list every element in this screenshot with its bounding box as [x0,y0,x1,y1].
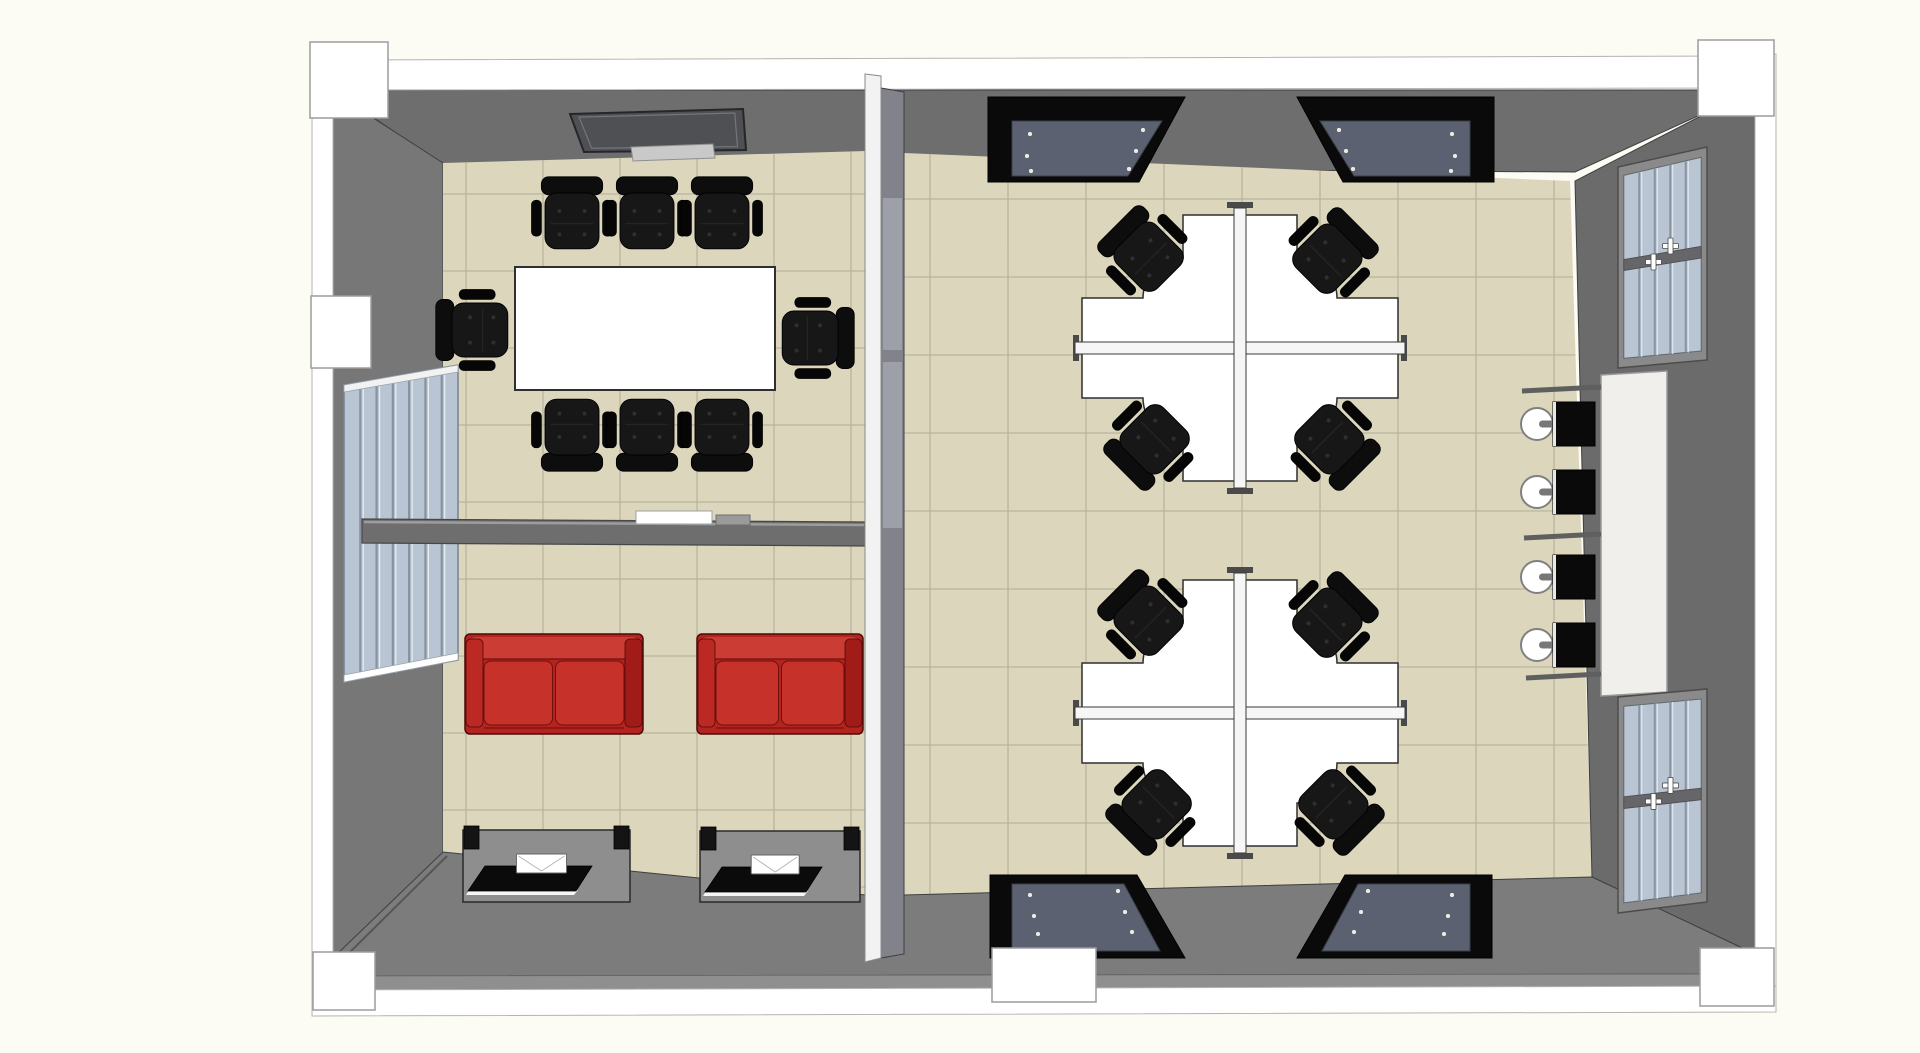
center-wall-top [865,74,881,962]
display-cabinet-top [1618,147,1707,368]
conference-table [515,267,775,390]
column-top-left [310,42,388,118]
center-wall-panel [883,362,902,528]
red-sofa-left [465,634,643,734]
display-cabinet-bottom [1618,689,1707,913]
partition-paper [636,511,712,524]
media-console-right [700,827,860,902]
column-top-right [1698,40,1774,116]
workstation-cluster-upper [1073,195,1407,500]
floor-plan-image [0,0,1920,1053]
red-sofa-right [697,634,863,734]
counter-stool [1521,623,1595,667]
partition-tray [716,515,750,525]
center-wall-panel [883,198,902,350]
standing-counter [1601,371,1667,696]
workstation-cluster-lower [1073,559,1407,865]
counter-stool [1521,402,1595,446]
column-bottom-left [313,952,375,1010]
floor-plan-svg [0,0,1920,1053]
column-mid-left [311,296,371,368]
column-bottom-center [992,948,1096,1002]
counter-stool [1521,470,1595,514]
media-console-left [463,826,630,902]
counter-stool [1521,555,1595,599]
outer-edge-top [333,56,1755,90]
outer-edge-right [1755,54,1776,988]
column-bottom-right [1700,948,1774,1006]
outer-edge-left [312,58,333,992]
